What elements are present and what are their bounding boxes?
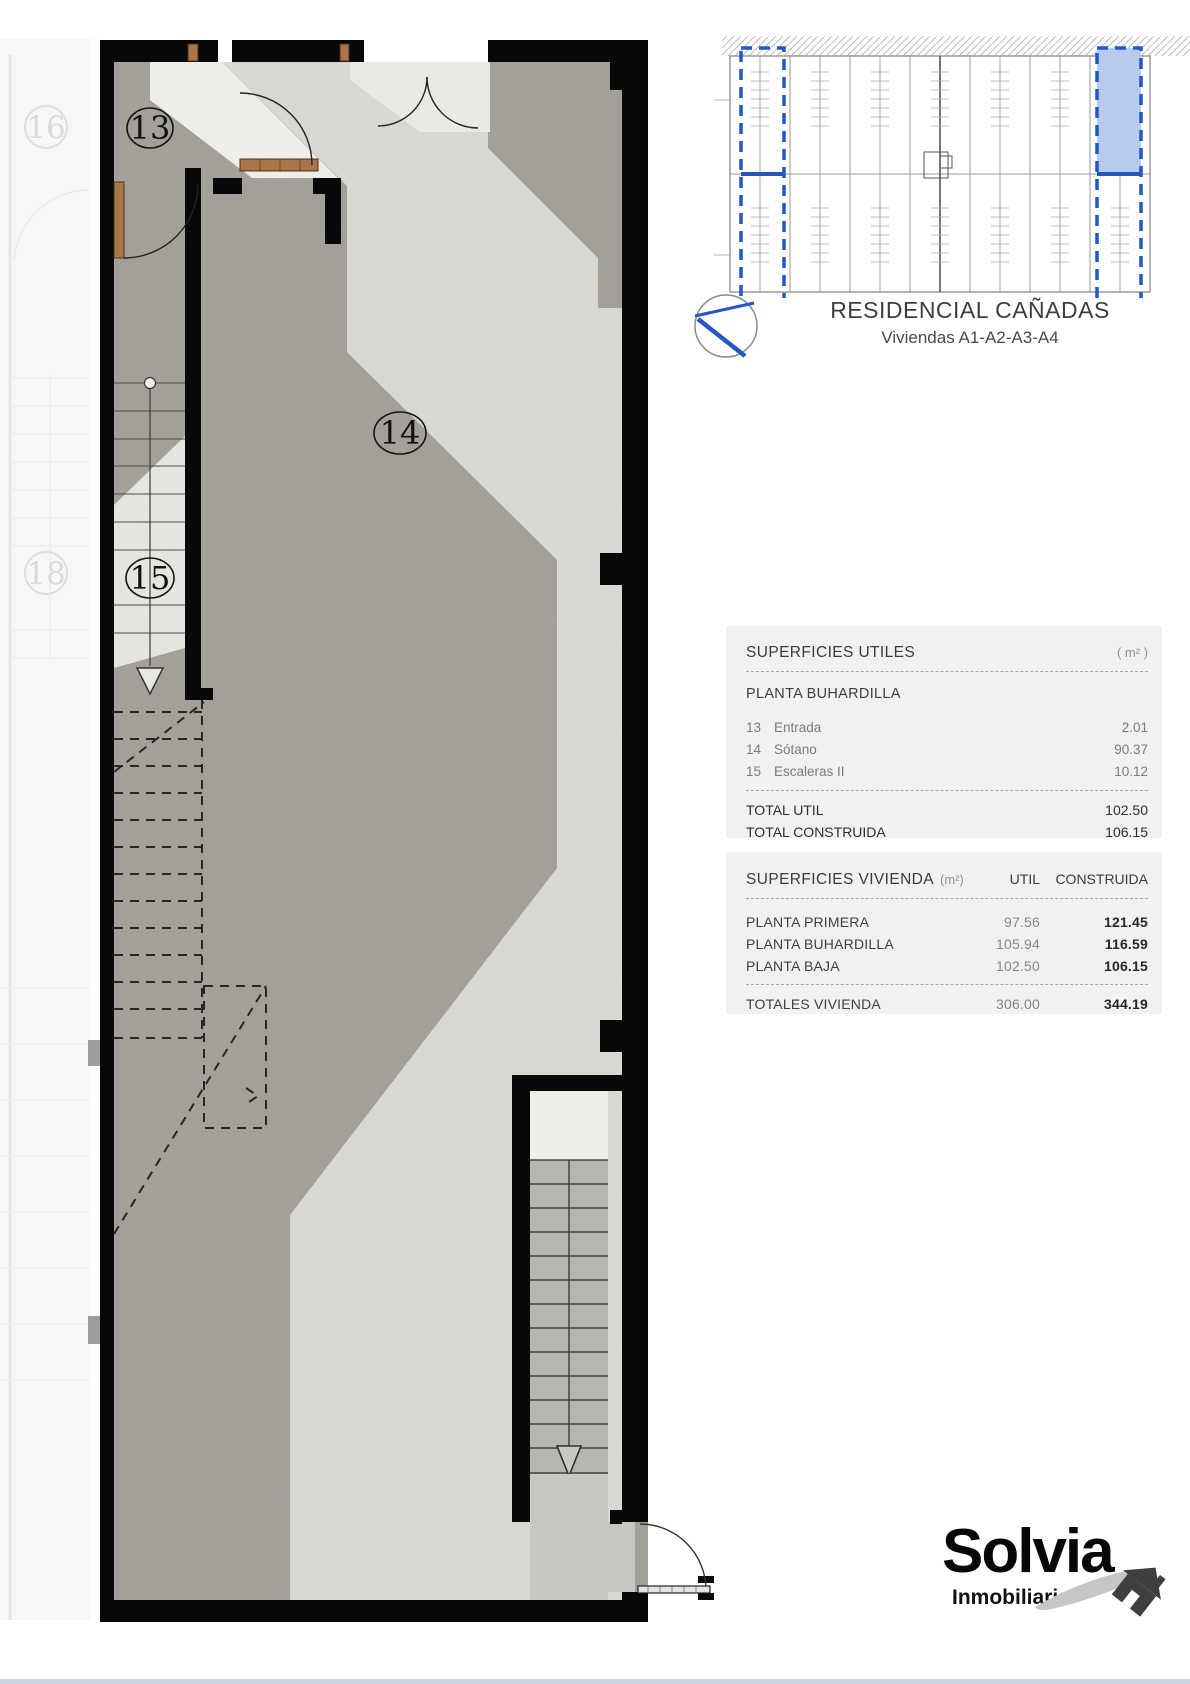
- utiles-unit-header: ( m² ): [1117, 642, 1148, 664]
- entrance-door-leaf: [638, 1586, 710, 1593]
- page-footer-rule: [0, 1679, 1190, 1684]
- superficies-utiles-panel: SUPERFICIES UTILES ( m² ) PLANTA BUHARDI…: [726, 626, 1162, 838]
- vivienda-title: SUPERFICIES VIVIENDA: [746, 869, 934, 891]
- ghost-adjacent-unit: 16 18: [0, 38, 100, 1620]
- table-row: PLANTA BUHARDILLA 105.94 116.59: [746, 933, 1148, 955]
- project-subtitle: Viviendas A1-A2-A3-A4: [760, 328, 1180, 348]
- table-row: PLANTA PRIMERA 97.56 121.45: [746, 911, 1148, 933]
- room-label-14: 14: [380, 414, 421, 452]
- room-label-13: 13: [130, 109, 171, 147]
- wood-door-leaf-stair: [114, 182, 124, 258]
- ghost-room-label-16: 16: [26, 110, 65, 146]
- col-header-construida: CONSTRUIDA: [1040, 868, 1148, 890]
- utiles-title: SUPERFICIES UTILES: [746, 642, 1117, 664]
- ghost-room-label-18: 18: [26, 556, 65, 592]
- north-arrow-icon: [688, 288, 764, 364]
- table-row: 13 Entrada 2.01: [746, 717, 1148, 739]
- utiles-section-label: PLANTA BUHARDILLA: [746, 686, 1148, 702]
- superficies-vivienda-panel: SUPERFICIES VIVIENDA (m²) UTIL CONSTRUID…: [726, 852, 1162, 1014]
- divider: [746, 790, 1148, 791]
- total-row: TOTAL CONSTRUIDA 106.15: [746, 821, 1148, 843]
- room-label-15: 15: [130, 559, 171, 597]
- divider: [746, 984, 1148, 985]
- col-header-util: UTIL: [970, 868, 1040, 890]
- total-row: TOTALES VIVIENDA 306.00 344.19: [746, 993, 1148, 1015]
- divider: [746, 898, 1148, 899]
- table-row: 15 Escaleras II 10.12: [746, 761, 1148, 783]
- project-title: RESIDENCIAL CAÑADAS: [760, 297, 1180, 324]
- table-row: 14 Sótano 90.37: [746, 739, 1148, 761]
- house-icon: [1030, 1545, 1190, 1655]
- divider: [746, 671, 1148, 672]
- wood-door-sill: [240, 159, 318, 171]
- table-row: PLANTA BAJA 102.50 106.15: [746, 955, 1148, 977]
- key-plan: [712, 30, 1190, 298]
- total-row: TOTAL UTIL 102.50: [746, 799, 1148, 821]
- floor-plan-drawing: 16 18: [0, 0, 720, 1684]
- plan-sheet: { "key_plan": { "title": "RESIDENCIAL CA…: [0, 0, 1190, 1684]
- vivienda-unit: (m²): [940, 869, 964, 891]
